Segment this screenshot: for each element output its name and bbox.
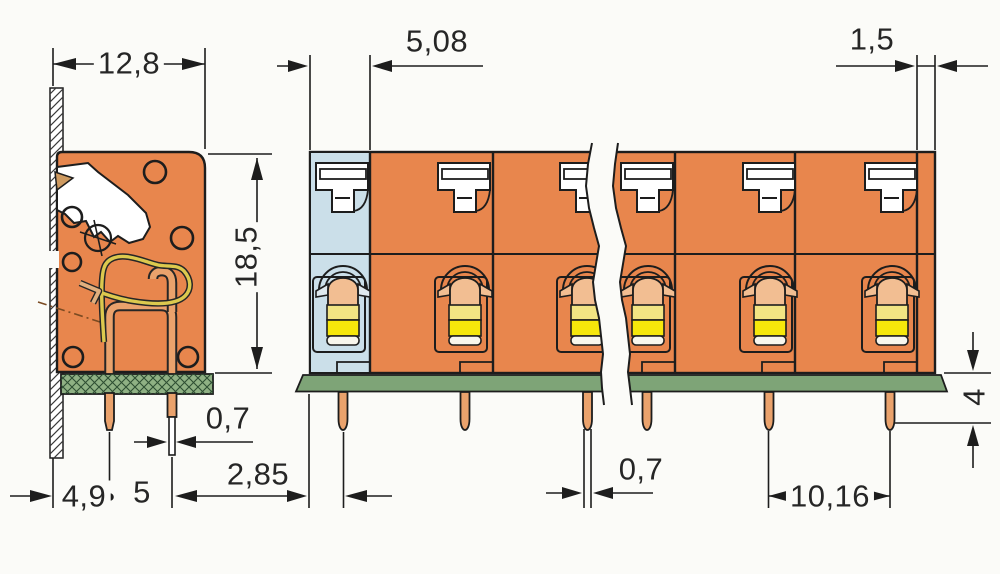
- dimension-pin-tip-side: [134, 436, 253, 448]
- solder-pin: [339, 392, 348, 430]
- wall-notch: [48, 251, 59, 268]
- dim-label-pin-tip-front: 0,7: [619, 454, 664, 485]
- solder-pin: [461, 392, 470, 430]
- technical-drawing-canvas: 12,8 5,08 1,5 18,5 0,7 2,85 4,9 5 0,7 10…: [0, 0, 1000, 574]
- dim-label-wall-to-pin: 4,9: [58, 481, 111, 512]
- dimension-end-offset: [836, 55, 988, 150]
- solder-pin: [583, 392, 592, 430]
- pcb-strip-side: [61, 374, 213, 394]
- dim-label-edge-to-pin: 2,85: [227, 459, 289, 490]
- dim-label-pitch: 10,16: [786, 481, 874, 512]
- dim-label-end-offset: 1,5: [850, 24, 895, 55]
- dim-label-pole-width: 5,08: [406, 26, 468, 57]
- dim-label-body-width: 12,8: [94, 48, 164, 79]
- side-view: [38, 88, 213, 458]
- solder-pin-side-right: [168, 393, 177, 455]
- front-view: [296, 143, 947, 430]
- solder-pin: [886, 392, 895, 430]
- solder-pin-side-left: [105, 393, 114, 430]
- dim-label-pin-tip-side: 0,7: [206, 403, 251, 434]
- dim-label-pin-gap: 5: [129, 477, 155, 508]
- solder-pin: [643, 392, 652, 430]
- solder-pin: [765, 392, 774, 430]
- dim-label-pin-length: 4: [959, 384, 990, 410]
- dimension-pole-width: [277, 55, 483, 150]
- dim-label-height: 18,5: [231, 222, 262, 292]
